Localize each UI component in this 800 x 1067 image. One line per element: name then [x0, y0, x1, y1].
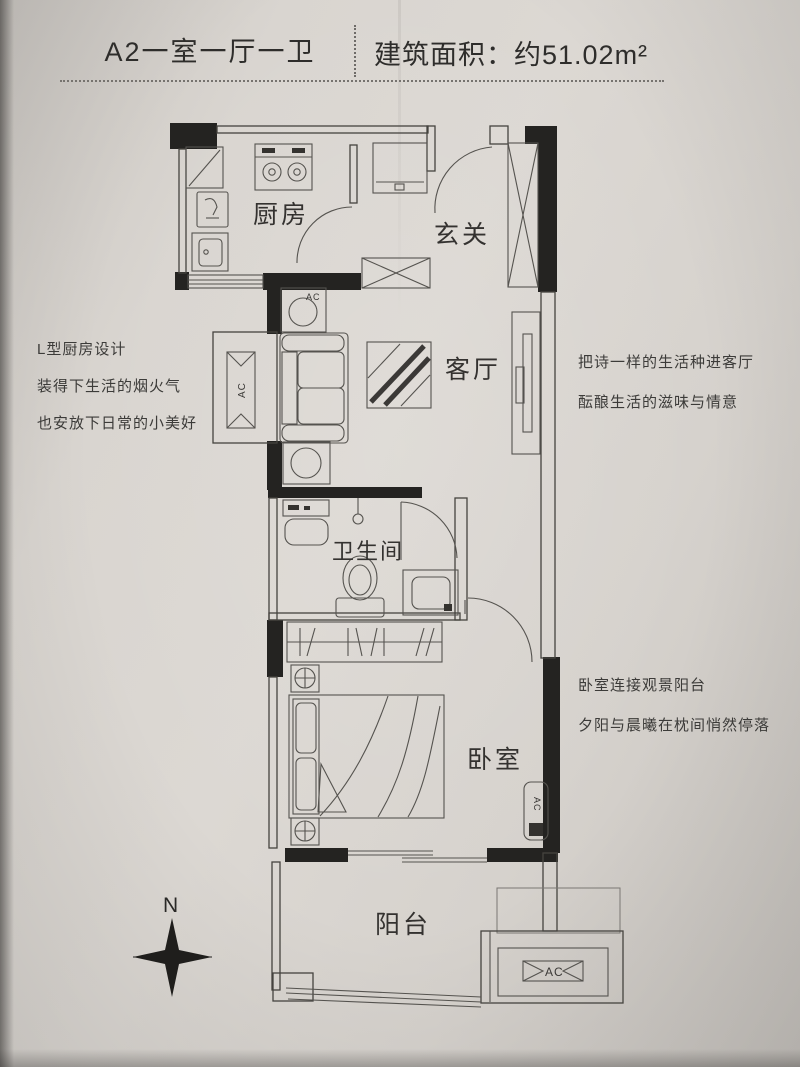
bedroom-ac-label: AC: [532, 797, 542, 812]
nightstand-north: [291, 665, 319, 692]
bedroom-fixtures: [287, 622, 548, 845]
compass: N: [133, 894, 212, 997]
ac-cabinet-label: AC: [306, 292, 321, 302]
living-fixtures: [213, 288, 540, 484]
balcony-window: [286, 988, 481, 1007]
nightstand-south: [291, 818, 319, 845]
rug: [367, 342, 431, 408]
balcony-sliding-door: [348, 851, 487, 862]
floorplan-drawing: N 厨房 玄关 客厅 卫生间 卧室 阳台 AC AC AC AC: [0, 0, 800, 1067]
blanket-fold: [318, 764, 346, 812]
bedroom-label: 卧室: [467, 746, 523, 774]
kitchen-counter: [188, 275, 263, 288]
photo-edge-bottom: [0, 1049, 800, 1067]
washbasin: [403, 570, 458, 615]
sofa: [280, 333, 348, 443]
bathroom-label: 卫生间: [332, 539, 404, 564]
pendant-lamp: [353, 498, 363, 524]
shower-tray: [285, 519, 328, 545]
entry-door-arc: [435, 147, 492, 213]
photo-edge-left: [0, 0, 14, 1067]
floorplan-page: A2一室一厅一卫 建筑面积：约51.02m² L型厨房设计 装得下生活的烟火气 …: [0, 0, 800, 1067]
bed: [289, 695, 444, 818]
entry-cabinet: [373, 143, 427, 193]
bedroom-door-arc: [468, 598, 532, 662]
entry-fixtures: [362, 143, 538, 288]
living-label: 客厅: [445, 356, 501, 384]
hallway-closet: [508, 143, 538, 287]
adjacent-slab-outline: [497, 888, 620, 933]
ac-platform-west-label: AC: [237, 382, 248, 398]
tv-cabinet: [512, 312, 540, 454]
bath-shelf: [283, 500, 329, 516]
faucet: [205, 199, 217, 215]
balcony-label: 阳台: [375, 911, 431, 939]
stove: [255, 144, 312, 190]
ac-platform-south-label: AC: [545, 965, 564, 979]
bathroom-door-arc: [401, 502, 457, 558]
kitchen-sink: [197, 192, 228, 227]
wardrobe: [287, 622, 442, 662]
shoe-cabinet: [362, 258, 430, 288]
kitchen-label: 厨房: [253, 201, 309, 229]
north-label: N: [163, 894, 178, 917]
balcony-fixtures: [286, 888, 623, 1007]
entry-label: 玄关: [434, 221, 490, 249]
toilet: [336, 556, 384, 617]
